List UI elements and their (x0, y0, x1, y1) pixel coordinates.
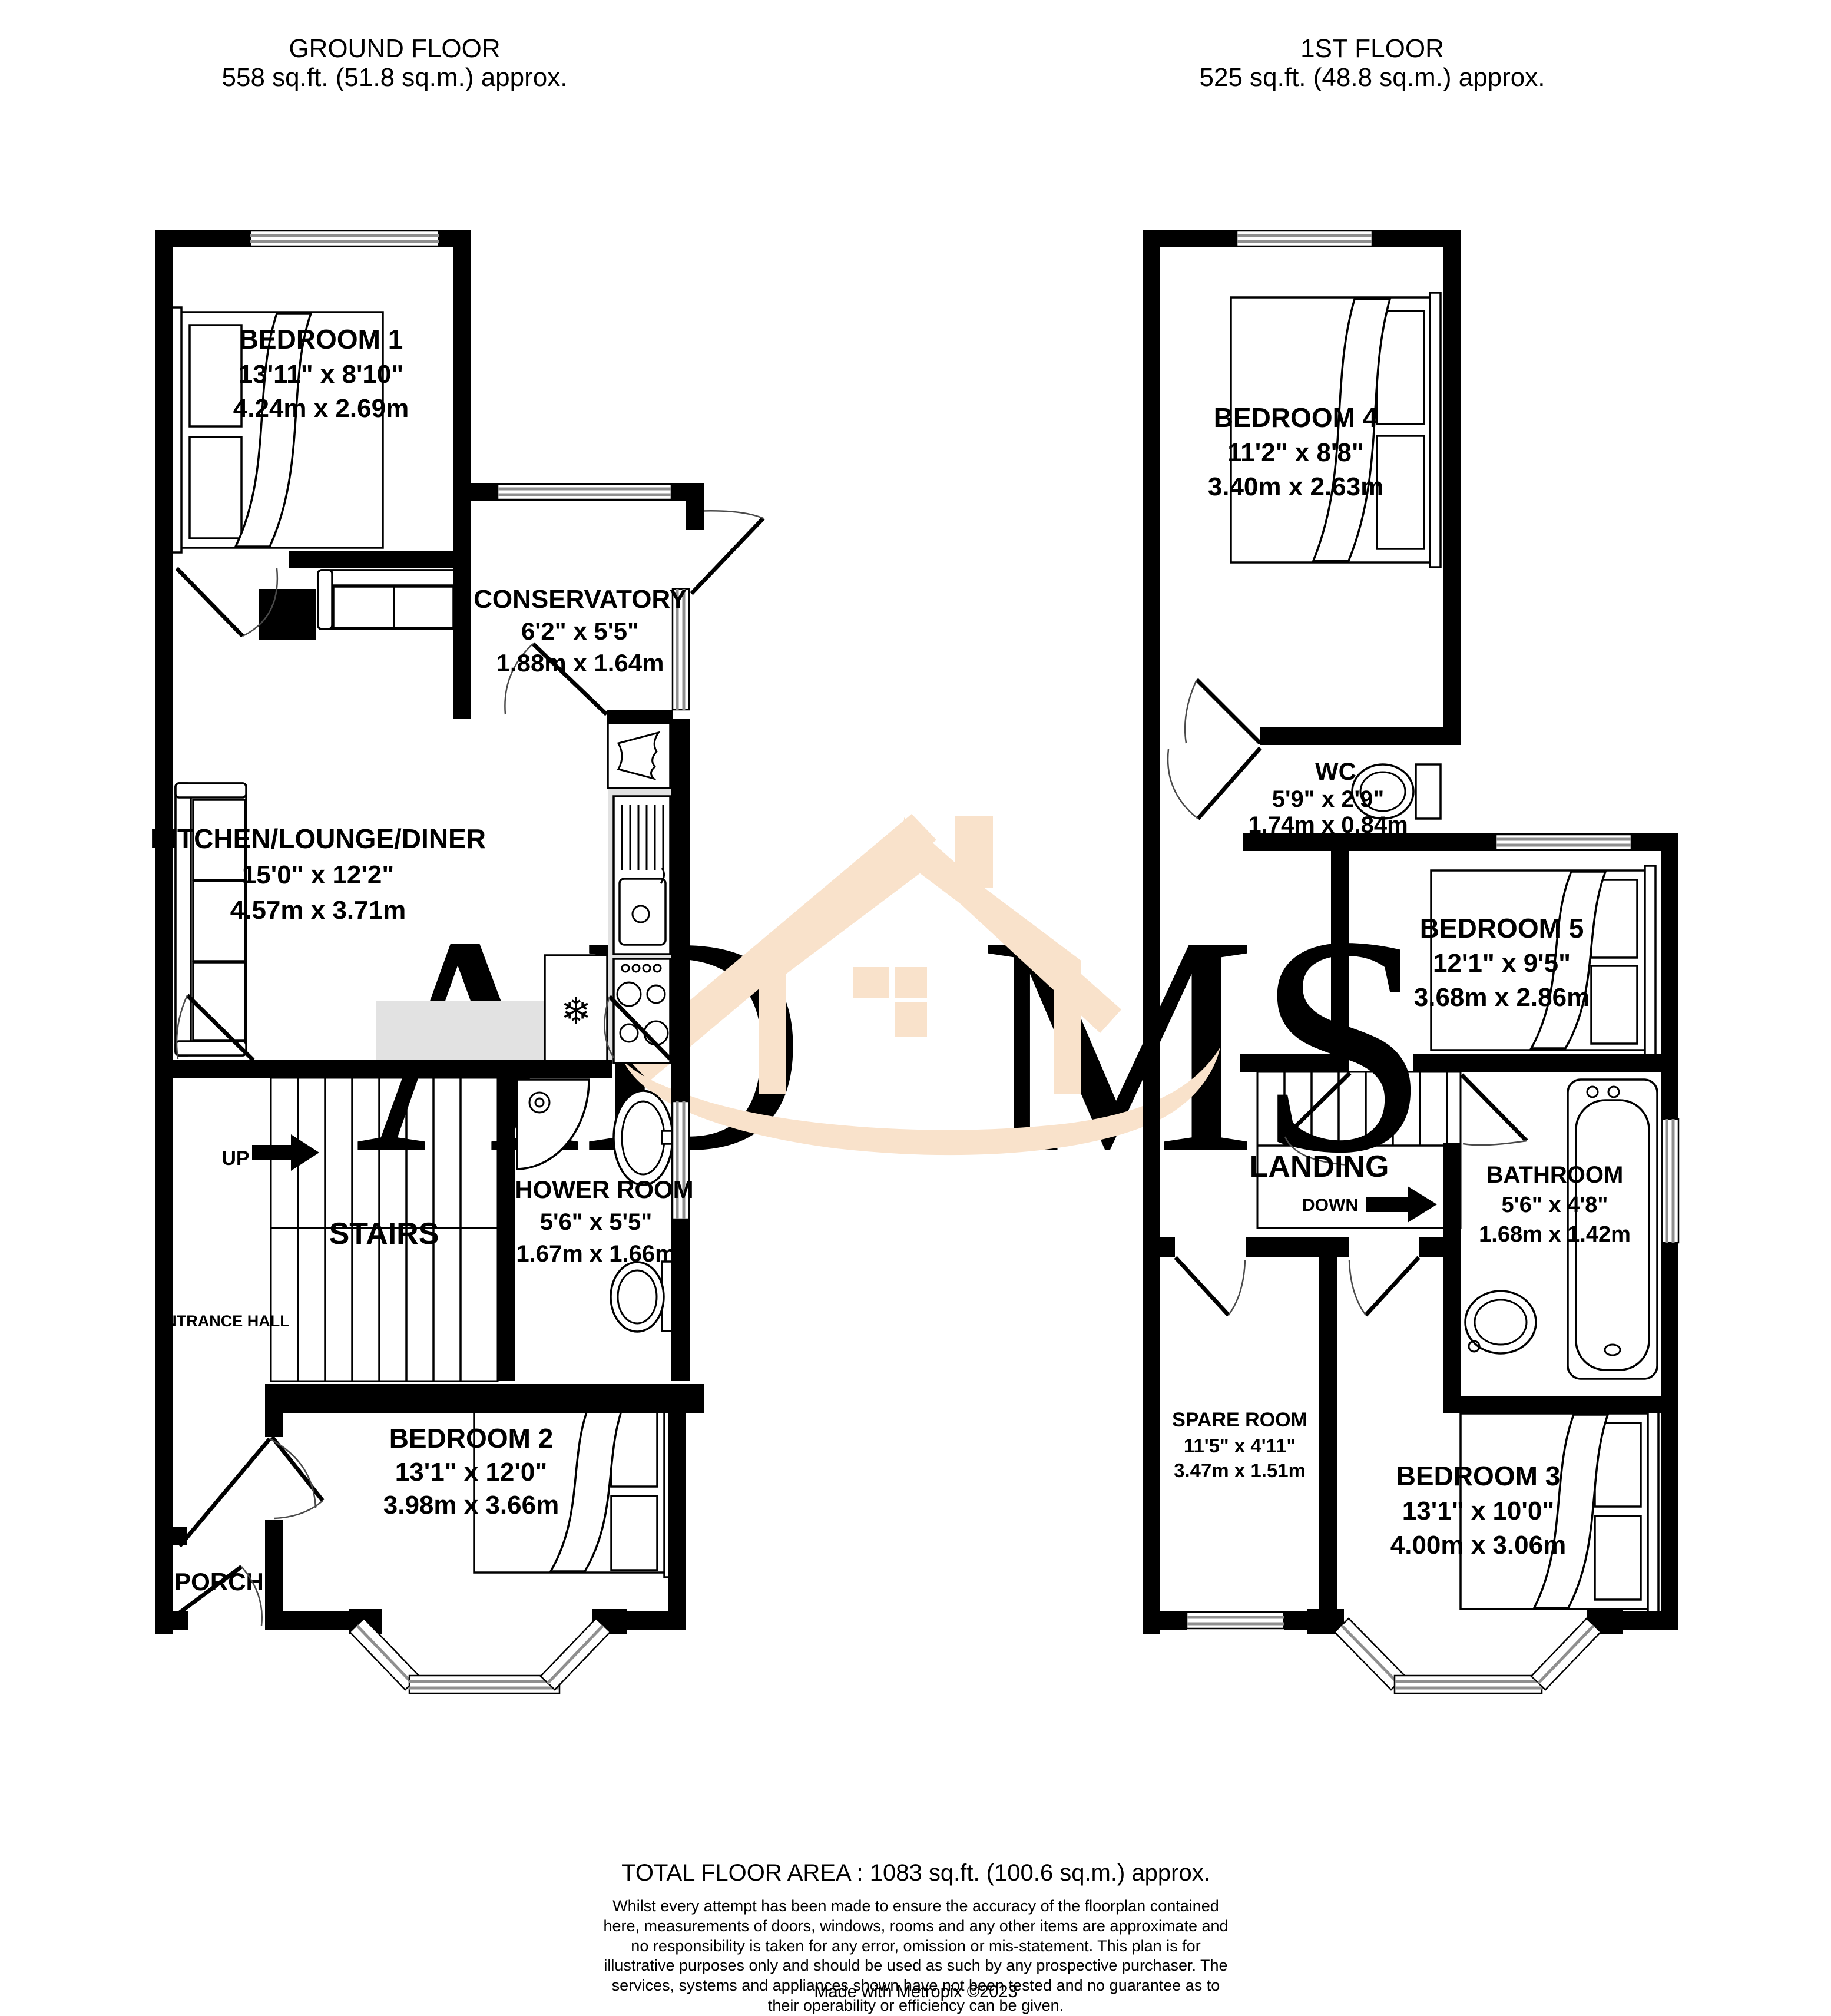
room-dims-metric-bedroom2: 3.98m x 3.66m (383, 1491, 559, 1520)
room-label-bedroom3: BEDROOM 3 (1396, 1461, 1561, 1491)
room-label-bedroom4: BEDROOM 4 (1214, 402, 1378, 433)
room-dims-imperial-bathroom: 5'6" x 4'8" (1502, 1193, 1608, 1217)
room-dims-metric-spare-room: 3.47m x 1.51m (1174, 1459, 1306, 1481)
first-floor-header: 1ST FLOOR 525 sq.ft. (48.8 sq.m.) approx… (1078, 34, 1667, 92)
label-up: UP (221, 1147, 249, 1170)
window-bedroom1 (250, 231, 439, 246)
room-dims-metric-bedroom5: 3.68m x 2.86m (1414, 983, 1590, 1012)
room-dims-metric-conservatory: 1.88m x 1.64m (496, 649, 664, 677)
first-floor-area: 525 sq.ft. (48.8 sq.m.) approx. (1078, 63, 1667, 92)
total-floor-area: TOTAL FLOOR AREA : 1083 sq.ft. (100.6 sq… (562, 1860, 1269, 1886)
window-spare-room (1187, 1612, 1284, 1628)
room-dims-imperial-shower-room: 5'6" x 5'5" (540, 1209, 652, 1235)
svg-text:❄: ❄ (561, 991, 591, 1032)
bay-window-bedroom2 (350, 1618, 610, 1693)
room-dims-metric-kitchen: 4.57m x 3.71m (230, 896, 406, 925)
door-bedroom4 (1185, 680, 1260, 743)
ground-floor-area: 558 sq.ft. (51.8 sq.m.) approx. (100, 63, 689, 92)
door-bathroom (1462, 1075, 1527, 1145)
ground-floor-title: GROUND FLOOR (100, 34, 689, 63)
bay-window-bedroom3 (1335, 1618, 1601, 1693)
room-dims-metric-bedroom1: 4.24m x 2.69m (233, 394, 409, 423)
room-dims-imperial-kitchen: 15'0" x 12'2" (242, 860, 394, 889)
sink-icon-bathroom (1465, 1291, 1536, 1353)
up-arrow-icon (252, 1134, 319, 1171)
room-dims-imperial-bedroom2: 13'1" x 12'0" (395, 1458, 547, 1487)
room-label-spare-room: SPARE ROOM (1172, 1409, 1307, 1431)
room-dims-imperial-bedroom5: 12'1" x 9'5" (1433, 949, 1571, 978)
metropix-credit: Made with Metropix ©2023 (562, 1982, 1269, 2002)
room-dims-metric-shower-room: 1.67m x 1.66m (516, 1241, 676, 1267)
room-dims-metric-bedroom4: 3.40m x 2.63m (1208, 472, 1383, 501)
fridge-icon: ❄ (545, 955, 607, 1063)
door-bedroom3 (1349, 1257, 1419, 1315)
window-bedroom4 (1237, 231, 1372, 246)
kitchen-sink-icon (614, 796, 670, 954)
door-wc (1168, 748, 1260, 819)
room-label-bathroom: BATHROOM (1486, 1162, 1624, 1188)
door-hall-porch (180, 1439, 316, 1546)
room-label-bedroom2: BEDROOM 2 (389, 1423, 554, 1454)
window-bathroom (1662, 1119, 1678, 1243)
room-dims-imperial-wc: 5'9" x 2'9" (1272, 786, 1384, 812)
room-dims-imperial-conservatory: 6'2" x 5'5" (521, 617, 639, 645)
room-dims-metric-bathroom: 1.68m x 1.42m (1479, 1222, 1631, 1247)
room-dims-metric-wc: 1.74m x 0.84m (1248, 812, 1408, 838)
room-dims-imperial-spare-room: 11'5" x 4'11" (1184, 1435, 1296, 1456)
room-label-shower-room: SHOWER ROOM (498, 1176, 693, 1203)
ground-floor-header: GROUND FLOOR 558 sq.ft. (51.8 sq.m.) app… (100, 34, 689, 92)
room-label-kitchen: KITCHEN/LOUNGE/DINER (150, 823, 486, 854)
room-label-conservatory: CONSERVATORY (474, 585, 687, 614)
sofa-icon-lounge-top (318, 570, 468, 629)
room-label-wc: WC (1315, 757, 1356, 785)
room-label-bedroom1: BEDROOM 1 (239, 324, 403, 355)
room-dims-metric-bedroom3: 4.00m x 3.06m (1390, 1531, 1566, 1560)
room-dims-imperial-bedroom3: 13'1" x 10'0" (1402, 1497, 1554, 1525)
kitchen-counter-bottom (376, 1001, 547, 1063)
first-floor-title: 1ST FLOOR (1078, 34, 1667, 63)
label-down: DOWN (1302, 1196, 1358, 1215)
room-label-entrance-hall: ENTRANCE HALL (154, 1312, 290, 1330)
room-dims-imperial-bedroom1: 13'11" x 8'10" (239, 360, 403, 389)
room-dims-imperial-bedroom4: 11'2" x 8'8" (1227, 438, 1364, 467)
floorplan-canvas: AD MS ENTRANCE HALL PORCH (0, 0, 1831, 2005)
wardrobe-icon (608, 723, 670, 788)
door-spare-room (1176, 1257, 1245, 1315)
window-conservatory-top (498, 484, 671, 499)
room-label-landing: LANDING (1250, 1150, 1389, 1184)
room-label-stairs: STAIRS (329, 1217, 439, 1251)
window-bedroom5 (1496, 835, 1631, 850)
room-label-bedroom5: BEDROOM 5 (1420, 913, 1584, 944)
